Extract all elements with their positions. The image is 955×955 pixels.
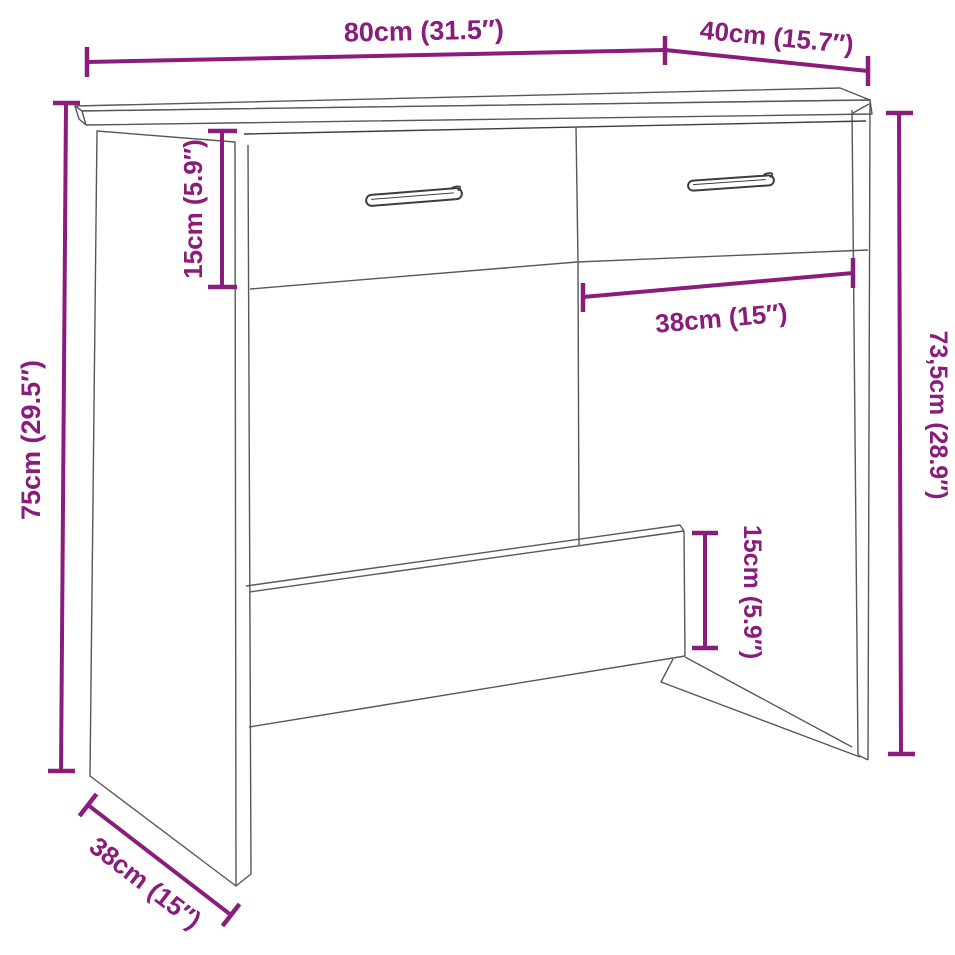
dimension-label: 40cm (15.7″) (699, 15, 855, 60)
dimension-top-width: 80cm (31.5″) (87, 14, 665, 77)
desk-technical-drawing: 80cm (31.5″) 40cm (15.7″) 15cm (5.9″) 75… (0, 0, 955, 955)
dimension-label: 73,5cm (28.9″) (924, 330, 952, 499)
dimension-top-depth: 40cm (15.7″) (665, 15, 868, 86)
dimension-back-panel-height: 15cm (5.9″) (692, 525, 766, 659)
dimension-drawer-width: 38cm (15″) (583, 258, 853, 339)
dimension-label: 15cm (5.9″) (738, 525, 766, 659)
dimension-overall-height: 75cm (29.5″) (16, 103, 80, 772)
right-side-panel (852, 101, 870, 760)
floor-edges (661, 657, 860, 757)
dimension-label: 15cm (5.9″) (178, 139, 208, 279)
dimension-label: 38cm (15″) (654, 297, 789, 338)
back-panel (246, 525, 685, 727)
dimension-side-height: 73,5cm (28.9″) (886, 113, 952, 754)
dimension-label: 80cm (31.5″) (343, 14, 504, 47)
desk-top (75, 88, 872, 125)
drawer-handle-left-icon (366, 186, 463, 206)
drawer-handle-right-icon (688, 173, 775, 191)
middle-partition (578, 262, 579, 545)
left-side-panel (90, 131, 251, 886)
dimension-label: 75cm (29.5″) (16, 360, 46, 520)
drawer-front-left (244, 121, 868, 289)
dimension-diagram: 80cm (31.5″) 40cm (15.7″) 15cm (5.9″) 75… (0, 0, 955, 955)
